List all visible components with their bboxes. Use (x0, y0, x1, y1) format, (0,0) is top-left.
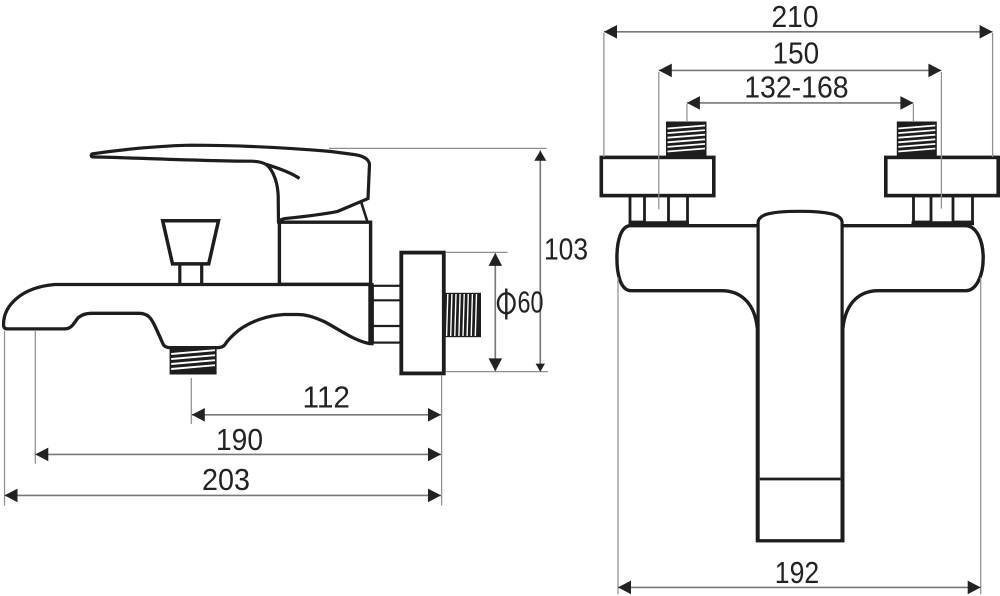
svg-text:192: 192 (775, 556, 819, 590)
svg-text:112: 112 (303, 380, 351, 414)
svg-text:60: 60 (518, 286, 544, 320)
svg-text:203: 203 (202, 463, 250, 497)
svg-text:132-168: 132-168 (744, 71, 848, 105)
svg-text:150: 150 (773, 37, 820, 71)
svg-text:103: 103 (544, 232, 588, 266)
svg-text:190: 190 (216, 423, 263, 457)
svg-text:210: 210 (772, 0, 819, 34)
